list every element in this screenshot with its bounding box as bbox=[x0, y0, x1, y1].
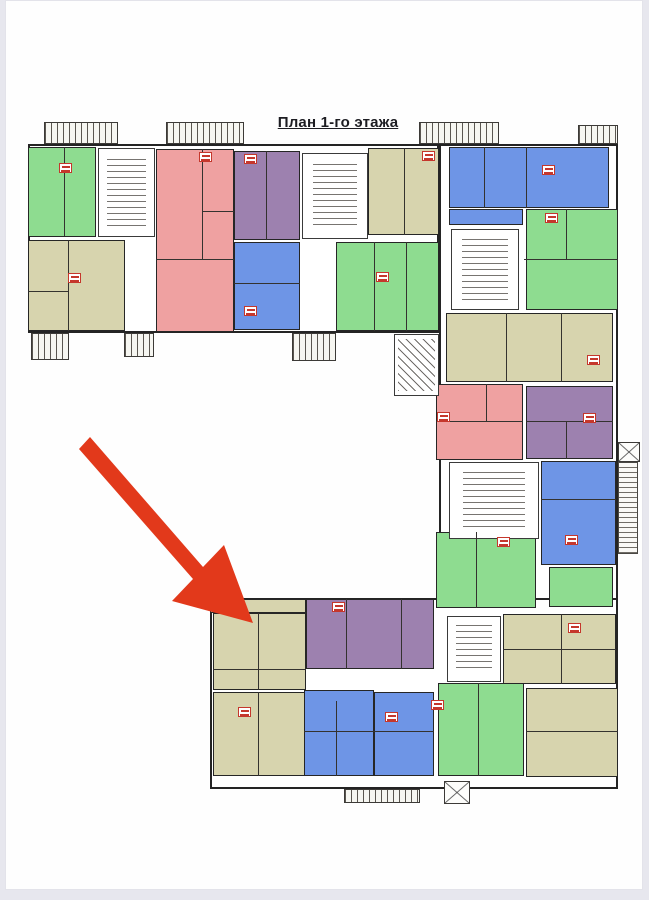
room-divider bbox=[541, 499, 616, 500]
apartment-pink-1 bbox=[156, 149, 234, 332]
room-divider bbox=[28, 291, 68, 292]
apartment-green-4 bbox=[549, 567, 613, 607]
room-divider bbox=[566, 421, 567, 459]
room-divider bbox=[526, 421, 613, 422]
unit-label-badge bbox=[587, 355, 600, 365]
apartment-purple-2 bbox=[526, 386, 613, 459]
stair-core-4 bbox=[449, 462, 539, 539]
unit-label-badge bbox=[68, 273, 81, 283]
unit-label-badge bbox=[199, 152, 212, 162]
apartment-blue-4 bbox=[304, 690, 374, 776]
unit-label-badge bbox=[422, 151, 435, 161]
room-divider bbox=[406, 242, 407, 331]
diagonal-stairs-icon bbox=[398, 339, 436, 392]
unit-label-badge bbox=[244, 306, 257, 316]
room-divider bbox=[202, 211, 234, 212]
unit-label-badge bbox=[376, 272, 389, 282]
balcony-top-2 bbox=[166, 122, 244, 144]
room-divider bbox=[566, 209, 567, 259]
unit-label-badge bbox=[244, 154, 257, 164]
room-divider bbox=[68, 240, 69, 331]
stair-core-2 bbox=[302, 153, 368, 239]
apartment-olive-5 bbox=[526, 688, 618, 777]
room-divider bbox=[484, 147, 485, 208]
unit-label-badge bbox=[542, 165, 555, 175]
stairs-icon bbox=[462, 239, 508, 299]
entry-stair-left-3 bbox=[292, 333, 336, 361]
shaft-bottom bbox=[444, 781, 470, 804]
room-divider bbox=[266, 151, 267, 240]
unit-label-badge bbox=[238, 707, 251, 717]
unit-label-badge bbox=[431, 700, 444, 710]
room-divider bbox=[234, 283, 300, 284]
room-divider bbox=[476, 532, 477, 608]
unit-label-badge bbox=[59, 163, 72, 173]
apartment-green-5 bbox=[436, 532, 536, 608]
balcony-row-olive bbox=[210, 599, 306, 613]
unit-label-badge bbox=[385, 712, 398, 722]
stairs-icon bbox=[107, 159, 146, 225]
entry-stair-bottom bbox=[344, 789, 420, 803]
room-divider bbox=[346, 599, 347, 669]
stair-core-5 bbox=[447, 616, 501, 682]
unit-label-badge bbox=[565, 535, 578, 545]
room-divider bbox=[258, 692, 259, 776]
unit-label-badge bbox=[568, 623, 581, 633]
room-divider bbox=[213, 669, 306, 670]
balcony-top-3 bbox=[419, 122, 499, 144]
apartment-blue-2 bbox=[449, 147, 609, 208]
entry-stair-left-1 bbox=[31, 333, 69, 360]
room-divider bbox=[561, 313, 562, 382]
room-divider bbox=[374, 731, 434, 732]
apartment-blue-2-annex bbox=[449, 209, 523, 225]
highlight-arrow-shape bbox=[79, 437, 253, 623]
room-divider bbox=[404, 148, 405, 235]
room-divider bbox=[374, 242, 375, 331]
room-divider bbox=[506, 313, 507, 382]
apartment-olive-4 bbox=[213, 692, 306, 776]
room-divider bbox=[526, 147, 527, 208]
room-divider bbox=[304, 731, 374, 732]
room-divider bbox=[478, 683, 479, 776]
room-divider bbox=[64, 147, 65, 236]
unit-label-badge bbox=[583, 413, 596, 423]
apartment-green-6 bbox=[438, 683, 524, 776]
room-divider bbox=[336, 701, 337, 776]
unit-label-badge bbox=[437, 412, 450, 422]
stair-connector bbox=[394, 334, 439, 396]
entry-stair-left-2 bbox=[124, 333, 154, 357]
unit-label-badge bbox=[497, 537, 510, 547]
shaft-right bbox=[618, 442, 640, 462]
apartment-blue-3 bbox=[541, 461, 616, 565]
stairs-icon bbox=[456, 625, 492, 674]
apartment-pink-2 bbox=[436, 384, 523, 460]
unit-label-badge bbox=[545, 213, 558, 223]
room-divider bbox=[524, 259, 618, 260]
unit-label-badge bbox=[332, 602, 345, 612]
room-divider bbox=[486, 384, 487, 421]
apartment-olive-3 bbox=[446, 313, 613, 382]
room-divider bbox=[258, 613, 259, 690]
balcony-top-1 bbox=[44, 122, 118, 144]
stair-core-3 bbox=[451, 229, 519, 310]
balcony-right-strip bbox=[618, 462, 638, 554]
stairs-icon bbox=[463, 472, 525, 529]
apartment-olive-1 bbox=[28, 240, 125, 331]
floor-plan: План 1-го этажа bbox=[6, 1, 642, 889]
room-divider bbox=[202, 149, 203, 259]
apartment-blue-5 bbox=[374, 692, 434, 776]
apartment-purple-3 bbox=[306, 599, 434, 669]
apartment-purple-1 bbox=[234, 151, 300, 240]
apartment-olive-target bbox=[213, 613, 306, 690]
balcony-top-4 bbox=[578, 125, 618, 144]
room-divider bbox=[401, 599, 402, 669]
photo-page: План 1-го этажа bbox=[5, 0, 643, 890]
plan-title: План 1-го этажа bbox=[258, 114, 418, 131]
apartment-blue-1 bbox=[234, 242, 300, 330]
apartment-green-1 bbox=[28, 147, 96, 237]
stair-core-1 bbox=[98, 148, 155, 237]
stairs-icon bbox=[313, 164, 358, 228]
apartment-green-2 bbox=[336, 242, 439, 331]
room-divider bbox=[526, 731, 618, 732]
room-divider bbox=[503, 649, 616, 650]
room-divider bbox=[156, 259, 234, 260]
